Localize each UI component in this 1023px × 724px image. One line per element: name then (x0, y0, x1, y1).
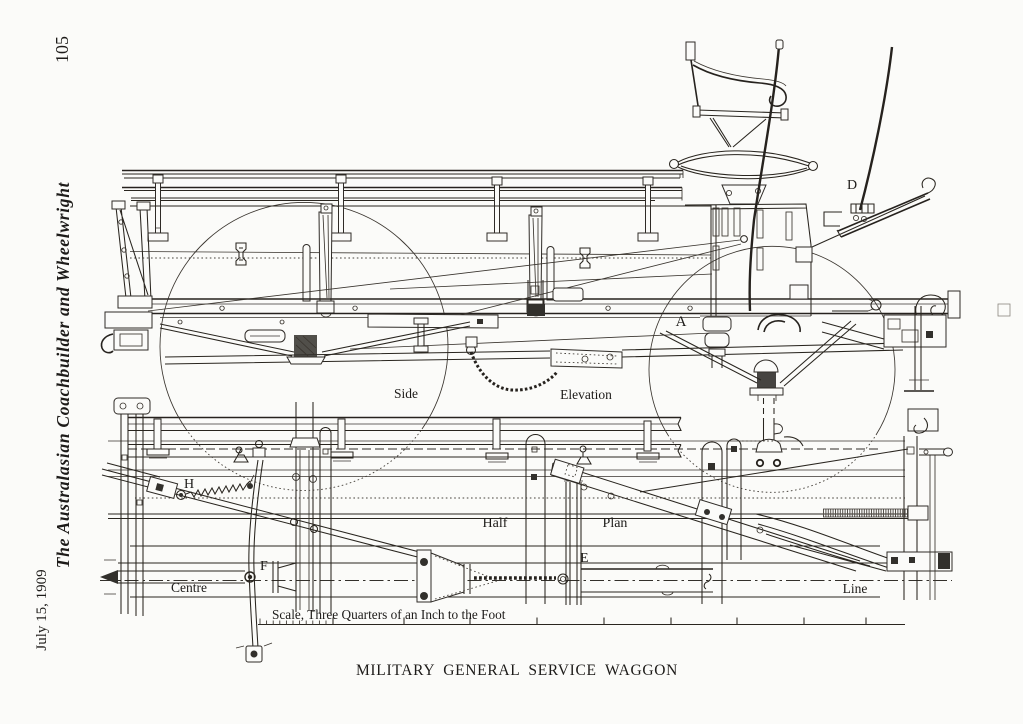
svg-text:F: F (260, 559, 268, 574)
svg-text:Half: Half (483, 516, 508, 531)
svg-text:105: 105 (52, 36, 72, 63)
svg-text:Side: Side (394, 386, 418, 401)
svg-text:The Australasian Coachbuilder: The Australasian Coachbuilder and Wheelw… (53, 181, 73, 568)
svg-text:Plan: Plan (603, 516, 628, 531)
svg-text:MILITARY GENERAL SERVICE WAGGO: MILITARY GENERAL SERVICE WAGGON (356, 662, 678, 679)
svg-text:H: H (184, 477, 194, 492)
svg-text:Elevation: Elevation (560, 387, 612, 402)
svg-text:Line: Line (843, 581, 868, 596)
svg-text:E: E (580, 551, 589, 566)
svg-text:July 15, 1909: July 15, 1909 (34, 569, 50, 650)
svg-text:A: A (676, 314, 687, 330)
svg-text:D: D (847, 178, 857, 193)
svg-text:Scale, Three Quarters of an In: Scale, Three Quarters of an Inch to the … (272, 607, 506, 622)
svg-text:Centre: Centre (171, 580, 207, 595)
